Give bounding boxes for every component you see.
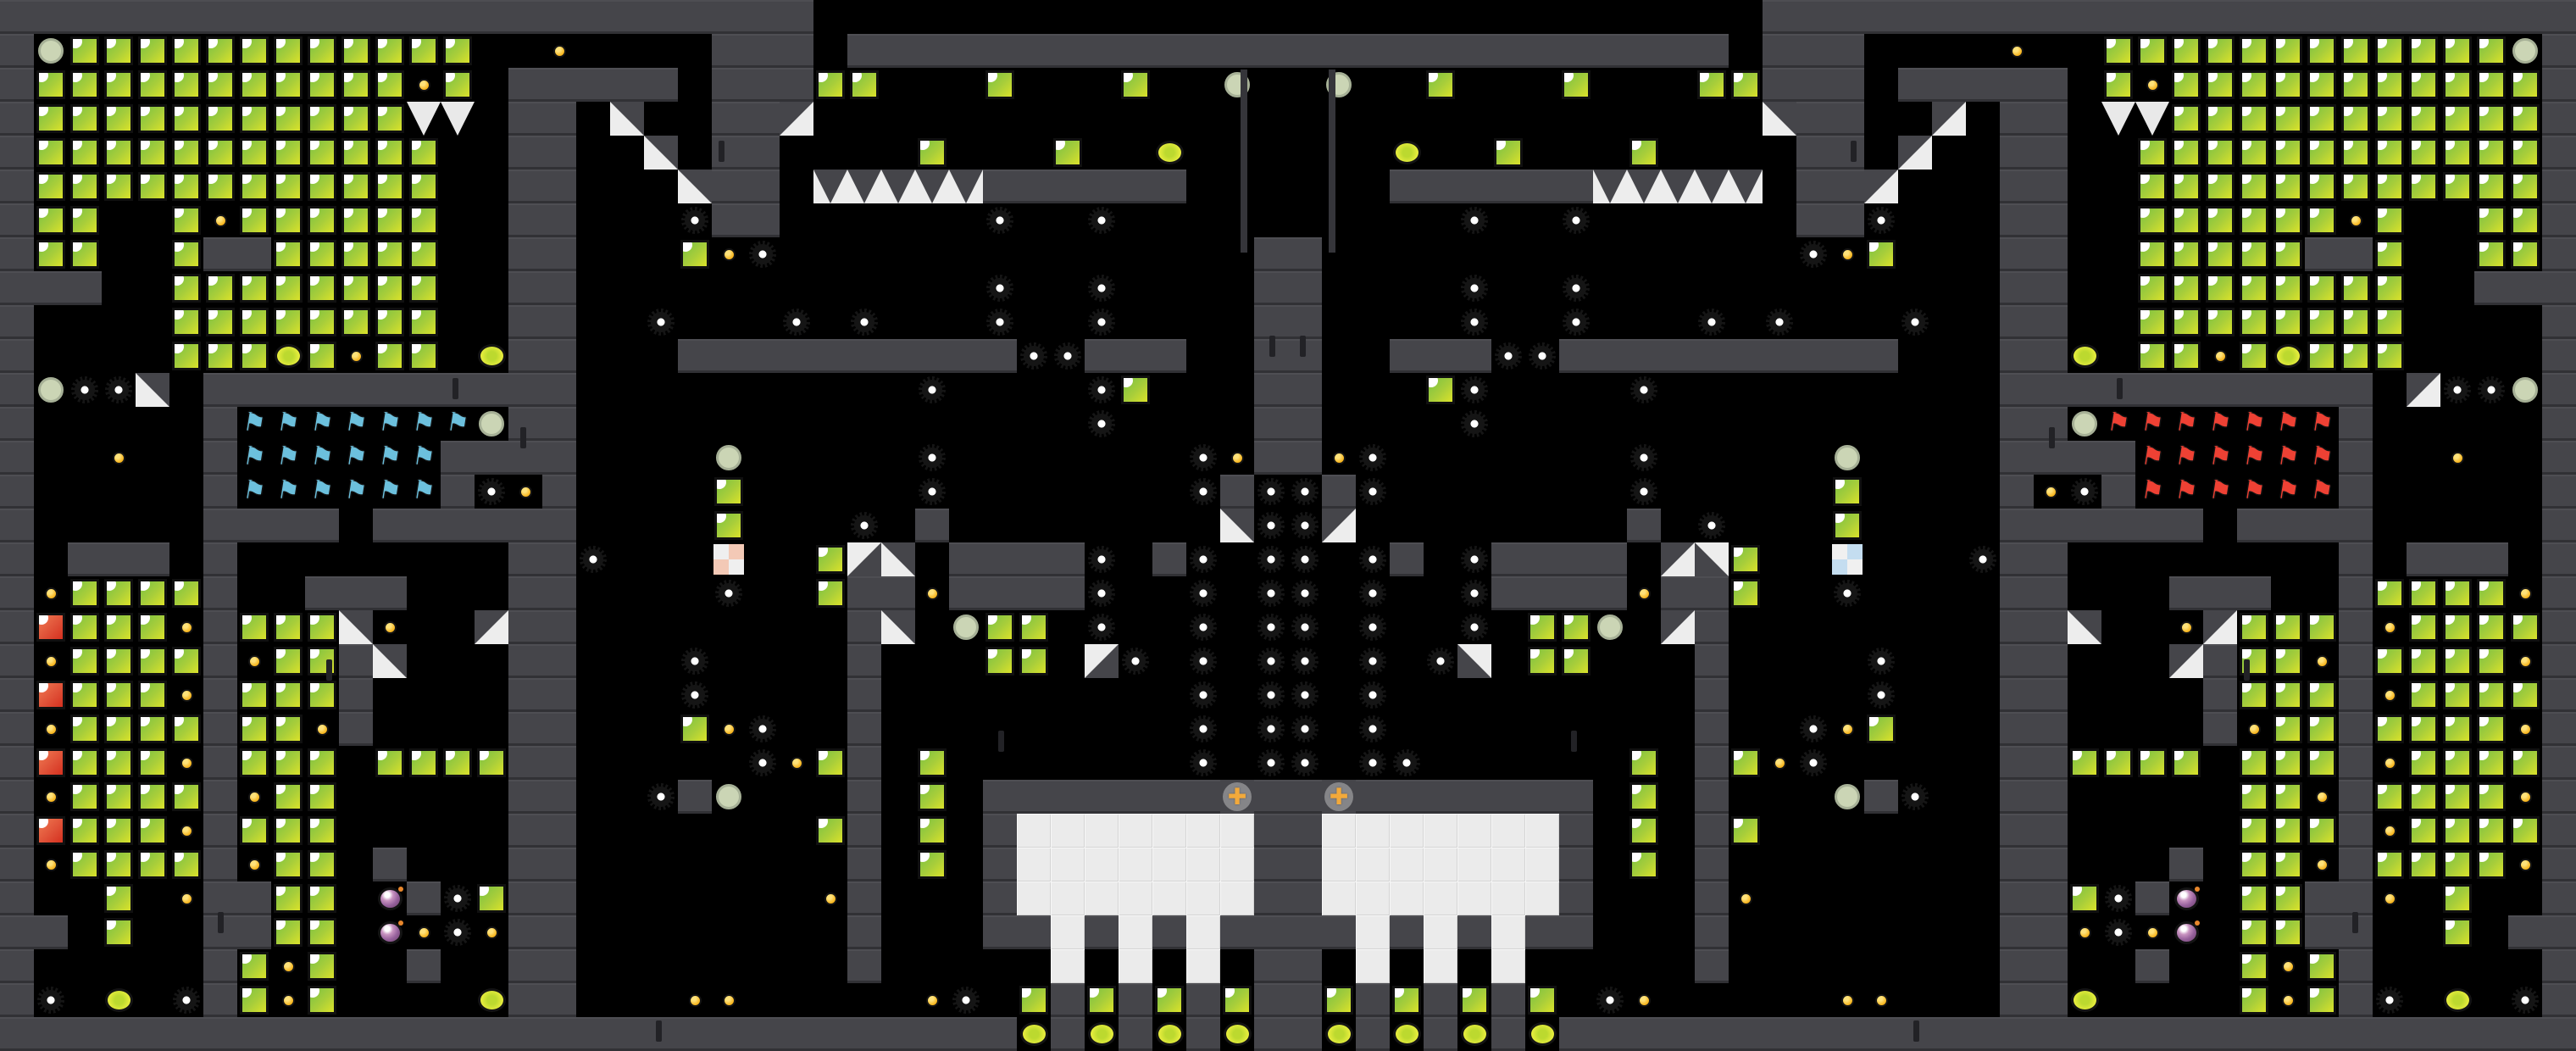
saw-gear-tile[interactable] [2068, 475, 2101, 509]
green-gem-tile[interactable] [1695, 68, 1729, 102]
coin-dot-tile[interactable] [34, 712, 68, 746]
green-gem-tile[interactable] [237, 949, 271, 983]
green-gem-tile[interactable] [271, 712, 305, 746]
saw-gear-tile[interactable] [1186, 576, 1220, 610]
green-gem-tile[interactable] [915, 136, 949, 170]
coin-dot-tile[interactable] [712, 237, 746, 271]
pale-orb-tile[interactable] [712, 441, 746, 475]
green-gem-tile[interactable] [2508, 68, 2542, 102]
cross-marker-tile[interactable]: ✚ [1322, 780, 1356, 814]
pale-orb-tile[interactable] [1322, 68, 1356, 102]
green-gem-tile[interactable] [2474, 712, 2508, 746]
saw-gear-tile[interactable] [1491, 339, 1525, 373]
teal-flag-tile[interactable]: ⚑ [373, 441, 407, 475]
yellow-orb-tile[interactable] [475, 339, 508, 373]
saw-gear-tile[interactable] [1864, 203, 1898, 237]
green-gem-tile[interactable] [2373, 339, 2407, 373]
green-gem-tile[interactable] [305, 949, 339, 983]
saw-gear-tile[interactable] [847, 305, 881, 339]
green-gem-tile[interactable] [203, 102, 237, 136]
green-gem-tile[interactable] [2373, 68, 2407, 102]
green-gem-tile[interactable] [2169, 34, 2203, 68]
teal-flag-tile[interactable]: ⚑ [305, 475, 339, 509]
green-gem-tile[interactable] [2101, 746, 2135, 780]
coin-dot-tile[interactable] [305, 712, 339, 746]
green-gem-tile[interactable] [2474, 102, 2508, 136]
green-gem-tile[interactable] [136, 746, 169, 780]
green-gem-tile[interactable] [2440, 678, 2474, 712]
saw-gear-tile[interactable] [1254, 509, 1288, 542]
green-gem-tile[interactable] [339, 203, 373, 237]
saw-gear-tile[interactable] [983, 305, 1017, 339]
coin-dot-tile[interactable] [2305, 644, 2339, 678]
saw-gear-tile[interactable] [1085, 576, 1119, 610]
saw-gear-tile[interactable] [1288, 678, 1322, 712]
green-gem-tile[interactable] [2508, 136, 2542, 170]
green-gem-tile[interactable] [339, 136, 373, 170]
green-gem-tile[interactable] [1627, 814, 1661, 848]
green-gem-tile[interactable] [2407, 712, 2440, 746]
saw-gear-tile[interactable] [1356, 475, 1390, 509]
coin-dot-tile[interactable] [2508, 780, 2542, 814]
green-gem-tile[interactable] [373, 305, 407, 339]
green-gem-tile[interactable] [1729, 814, 1763, 848]
green-gem-tile[interactable] [2339, 136, 2373, 170]
green-gem-tile[interactable] [136, 610, 169, 644]
saw-gear-tile[interactable] [1356, 441, 1390, 475]
green-gem-tile[interactable] [237, 339, 271, 373]
green-gem-tile[interactable] [102, 34, 136, 68]
green-gem-tile[interactable] [2407, 34, 2440, 68]
coin-dot-tile[interactable] [169, 610, 203, 644]
red-flag-tile[interactable]: ⚑ [2305, 475, 2339, 509]
purple-orb-tile[interactable] [373, 915, 407, 949]
purple-orb-tile[interactable] [2169, 915, 2203, 949]
green-gem-tile[interactable] [915, 848, 949, 881]
green-gem-tile[interactable] [68, 712, 102, 746]
saw-gear-tile[interactable] [1864, 644, 1898, 678]
saw-gear-tile[interactable] [1796, 712, 1830, 746]
green-gem-tile[interactable] [2407, 136, 2440, 170]
green-gem-tile[interactable] [2237, 610, 2271, 644]
green-gem-tile[interactable] [2407, 68, 2440, 102]
pink-checker-tile[interactable] [712, 542, 746, 576]
green-gem-tile[interactable] [2271, 203, 2305, 237]
green-gem-tile[interactable] [1627, 848, 1661, 881]
saw-gear-tile[interactable] [1051, 339, 1085, 373]
coin-dot-tile[interactable] [169, 814, 203, 848]
green-gem-tile[interactable] [2203, 170, 2237, 203]
saw-gear-tile[interactable] [576, 542, 610, 576]
saw-gear-tile[interactable] [1288, 475, 1322, 509]
green-gem-tile[interactable] [271, 814, 305, 848]
pale-orb-tile[interactable] [1593, 610, 1627, 644]
saw-gear-tile[interactable] [1085, 542, 1119, 576]
green-gem-tile[interactable] [305, 305, 339, 339]
green-gem-tile[interactable] [136, 848, 169, 881]
green-gem-tile[interactable] [2203, 305, 2237, 339]
saw-gear-tile[interactable] [1085, 271, 1119, 305]
green-gem-tile[interactable] [305, 170, 339, 203]
saw-gear-tile[interactable] [1288, 509, 1322, 542]
green-gem-tile[interactable] [203, 170, 237, 203]
saw-gear-tile[interactable] [1457, 203, 1491, 237]
green-gem-tile[interactable] [68, 678, 102, 712]
green-gem-tile[interactable] [68, 576, 102, 610]
green-gem-tile[interactable] [2373, 136, 2407, 170]
green-gem-tile[interactable] [813, 68, 847, 102]
green-gem-tile[interactable] [2203, 102, 2237, 136]
green-gem-tile[interactable] [68, 34, 102, 68]
teal-flag-tile[interactable]: ⚑ [441, 407, 475, 441]
green-gem-tile[interactable] [169, 34, 203, 68]
green-gem-tile[interactable] [2373, 271, 2407, 305]
green-gem-tile[interactable] [2474, 203, 2508, 237]
green-gem-tile[interactable] [169, 102, 203, 136]
coin-dot-tile[interactable] [1729, 881, 1763, 915]
green-gem-tile[interactable] [2271, 34, 2305, 68]
saw-gear-tile[interactable] [1254, 542, 1288, 576]
green-gem-tile[interactable] [305, 339, 339, 373]
green-gem-tile[interactable] [169, 271, 203, 305]
saw-gear-tile[interactable] [678, 644, 712, 678]
green-gem-tile[interactable] [237, 678, 271, 712]
green-gem-tile[interactable] [203, 34, 237, 68]
green-gem-tile[interactable] [373, 271, 407, 305]
green-gem-tile[interactable] [2305, 271, 2339, 305]
green-gem-tile[interactable] [2474, 170, 2508, 203]
green-gem-tile[interactable] [237, 68, 271, 102]
yellow-orb-tile[interactable] [2271, 339, 2305, 373]
coin-dot-tile[interactable] [237, 644, 271, 678]
green-gem-tile[interactable] [2135, 305, 2169, 339]
green-gem-tile[interactable] [169, 712, 203, 746]
green-gem-tile[interactable] [2271, 814, 2305, 848]
green-gem-tile[interactable] [102, 576, 136, 610]
green-gem-tile[interactable] [237, 610, 271, 644]
green-gem-tile[interactable] [2508, 678, 2542, 712]
saw-gear-tile[interactable] [441, 881, 475, 915]
green-gem-tile[interactable] [2373, 237, 2407, 271]
green-gem-tile[interactable] [102, 68, 136, 102]
green-gem-tile[interactable] [305, 678, 339, 712]
pale-orb-tile[interactable] [1830, 441, 1864, 475]
green-gem-tile[interactable] [2339, 305, 2373, 339]
green-gem-tile[interactable] [102, 915, 136, 949]
green-gem-tile[interactable] [2305, 203, 2339, 237]
green-gem-tile[interactable] [339, 102, 373, 136]
pale-orb-tile[interactable] [34, 34, 68, 68]
red-flag-tile[interactable]: ⚑ [2135, 407, 2169, 441]
green-gem-tile[interactable] [68, 848, 102, 881]
saw-gear-tile[interactable] [2101, 915, 2135, 949]
green-gem-tile[interactable] [2440, 68, 2474, 102]
green-gem-tile[interactable] [1424, 68, 1457, 102]
pale-orb-tile[interactable] [2508, 373, 2542, 407]
green-gem-tile[interactable] [2339, 68, 2373, 102]
green-gem-tile[interactable] [305, 34, 339, 68]
yellow-orb-tile[interactable] [102, 983, 136, 1017]
saw-gear-tile[interactable] [1457, 407, 1491, 441]
coin-dot-tile[interactable] [475, 915, 508, 949]
green-gem-tile[interactable] [237, 305, 271, 339]
green-gem-tile[interactable] [2339, 271, 2373, 305]
green-gem-tile[interactable] [678, 712, 712, 746]
green-gem-tile[interactable] [2373, 102, 2407, 136]
green-gem-tile[interactable] [1830, 475, 1864, 509]
pale-orb-tile[interactable] [1830, 780, 1864, 814]
green-gem-tile[interactable] [2237, 678, 2271, 712]
coin-dot-tile[interactable] [2373, 678, 2407, 712]
green-gem-tile[interactable] [2305, 170, 2339, 203]
green-gem-tile[interactable] [1627, 746, 1661, 780]
green-gem-tile[interactable] [2135, 271, 2169, 305]
teal-flag-tile[interactable]: ⚑ [271, 475, 305, 509]
saw-gear-tile[interactable] [1288, 576, 1322, 610]
green-gem-tile[interactable] [102, 610, 136, 644]
coin-dot-tile[interactable] [2373, 610, 2407, 644]
saw-gear-tile[interactable] [2373, 983, 2407, 1017]
green-gem-tile[interactable] [102, 814, 136, 848]
saw-gear-tile[interactable] [1186, 610, 1220, 644]
coin-dot-tile[interactable] [813, 881, 847, 915]
green-gem-tile[interactable] [2271, 848, 2305, 881]
coin-dot-tile[interactable] [2339, 203, 2373, 237]
saw-gear-tile[interactable] [1186, 542, 1220, 576]
green-gem-tile[interactable] [2305, 305, 2339, 339]
green-gem-tile[interactable] [136, 136, 169, 170]
coin-dot-tile[interactable] [2508, 576, 2542, 610]
green-gem-tile[interactable] [305, 848, 339, 881]
green-gem-tile[interactable] [2271, 746, 2305, 780]
green-gem-tile[interactable] [2237, 102, 2271, 136]
teal-flag-tile[interactable]: ⚑ [373, 407, 407, 441]
green-gem-tile[interactable] [2508, 746, 2542, 780]
green-gem-tile[interactable] [2474, 644, 2508, 678]
saw-gear-tile[interactable] [1695, 305, 1729, 339]
saw-gear-tile[interactable] [1390, 746, 1424, 780]
green-gem-tile[interactable] [2474, 136, 2508, 170]
saw-gear-tile[interactable] [1356, 610, 1390, 644]
green-gem-tile[interactable] [373, 339, 407, 373]
blue-checker-tile[interactable] [1830, 542, 1864, 576]
green-gem-tile[interactable] [475, 746, 508, 780]
green-gem-tile[interactable] [2135, 237, 2169, 271]
saw-gear-tile[interactable] [2440, 373, 2474, 407]
coin-dot-tile[interactable] [2135, 68, 2169, 102]
green-gem-tile[interactable] [237, 34, 271, 68]
red-flag-tile[interactable]: ⚑ [2237, 407, 2271, 441]
teal-flag-tile[interactable]: ⚑ [407, 407, 441, 441]
saw-gear-tile[interactable] [1254, 610, 1288, 644]
green-gem-tile[interactable] [2440, 814, 2474, 848]
green-gem-tile[interactable] [2237, 34, 2271, 68]
green-gem-tile[interactable] [339, 305, 373, 339]
green-gem-tile[interactable] [1559, 644, 1593, 678]
saw-gear-tile[interactable] [1186, 678, 1220, 712]
saw-gear-tile[interactable] [1254, 475, 1288, 509]
green-gem-tile[interactable] [34, 170, 68, 203]
pale-orb-tile[interactable] [712, 780, 746, 814]
saw-gear-tile[interactable] [1288, 644, 1322, 678]
green-gem-tile[interactable] [2237, 949, 2271, 983]
green-gem-tile[interactable] [271, 68, 305, 102]
coin-dot-tile[interactable] [2135, 915, 2169, 949]
saw-gear-tile[interactable] [1186, 712, 1220, 746]
coin-dot-tile[interactable] [237, 848, 271, 881]
green-gem-tile[interactable] [2135, 203, 2169, 237]
red-flag-tile[interactable]: ⚑ [2271, 407, 2305, 441]
coin-dot-tile[interactable] [1627, 576, 1661, 610]
saw-gear-tile[interactable] [678, 678, 712, 712]
green-gem-tile[interactable] [2169, 305, 2203, 339]
green-gem-tile[interactable] [305, 915, 339, 949]
yellow-orb-tile[interactable] [2068, 983, 2101, 1017]
green-gem-tile[interactable] [2373, 848, 2407, 881]
green-gem-tile[interactable] [2474, 237, 2508, 271]
saw-gear-tile[interactable] [1457, 271, 1491, 305]
green-gem-tile[interactable] [2508, 814, 2542, 848]
green-gem-tile[interactable] [2305, 34, 2339, 68]
green-gem-tile[interactable] [271, 678, 305, 712]
green-gem-tile[interactable] [339, 68, 373, 102]
saw-gear-tile[interactable] [1796, 746, 1830, 780]
green-gem-tile[interactable] [915, 814, 949, 848]
green-gem-tile[interactable] [271, 610, 305, 644]
green-gem-tile[interactable] [2271, 712, 2305, 746]
green-gem-tile[interactable] [712, 475, 746, 509]
coin-dot-tile[interactable] [1763, 746, 1796, 780]
green-gem-tile[interactable] [2440, 136, 2474, 170]
green-gem-tile[interactable] [2237, 848, 2271, 881]
teal-flag-tile[interactable]: ⚑ [271, 441, 305, 475]
green-gem-tile[interactable] [2169, 339, 2203, 373]
green-gem-tile[interactable] [1322, 983, 1356, 1017]
green-gem-tile[interactable] [2169, 203, 2203, 237]
pale-orb-tile[interactable] [2068, 407, 2101, 441]
green-gem-tile[interactable] [2271, 780, 2305, 814]
teal-flag-tile[interactable]: ⚑ [373, 475, 407, 509]
green-gem-tile[interactable] [2508, 102, 2542, 136]
green-gem-tile[interactable] [915, 746, 949, 780]
green-gem-tile[interactable] [407, 305, 441, 339]
green-gem-tile[interactable] [2237, 814, 2271, 848]
green-gem-tile[interactable] [2169, 237, 2203, 271]
green-gem-tile[interactable] [2508, 170, 2542, 203]
coin-dot-tile[interactable] [34, 848, 68, 881]
coin-dot-tile[interactable] [169, 746, 203, 780]
coin-dot-tile[interactable] [237, 780, 271, 814]
coin-dot-tile[interactable] [407, 915, 441, 949]
green-gem-tile[interactable] [983, 68, 1017, 102]
green-gem-tile[interactable] [2373, 203, 2407, 237]
green-gem-tile[interactable] [441, 746, 475, 780]
green-gem-tile[interactable] [237, 170, 271, 203]
saw-gear-tile[interactable] [1017, 339, 1051, 373]
coin-dot-tile[interactable] [2271, 949, 2305, 983]
green-gem-tile[interactable] [102, 136, 136, 170]
green-gem-tile[interactable] [2440, 102, 2474, 136]
coin-dot-tile[interactable] [2203, 339, 2237, 373]
green-gem-tile[interactable] [102, 712, 136, 746]
green-gem-tile[interactable] [1017, 983, 1051, 1017]
red-flag-tile[interactable]: ⚑ [2135, 441, 2169, 475]
green-gem-tile[interactable] [305, 68, 339, 102]
coin-dot-tile[interactable] [1220, 441, 1254, 475]
green-gem-tile[interactable] [102, 746, 136, 780]
green-gem-tile[interactable] [475, 881, 508, 915]
green-gem-tile[interactable] [339, 170, 373, 203]
green-gem-tile[interactable] [2237, 305, 2271, 339]
saw-gear-tile[interactable] [1085, 407, 1119, 441]
green-gem-tile[interactable] [2474, 678, 2508, 712]
saw-gear-tile[interactable] [1966, 542, 2000, 576]
green-gem-tile[interactable] [237, 203, 271, 237]
green-gem-tile[interactable] [271, 780, 305, 814]
green-gem-tile[interactable] [373, 102, 407, 136]
coin-dot-tile[interactable] [271, 983, 305, 1017]
green-gem-tile[interactable] [2407, 746, 2440, 780]
green-gem-tile[interactable] [1220, 983, 1254, 1017]
green-gem-tile[interactable] [2135, 170, 2169, 203]
green-gem-tile[interactable] [2203, 34, 2237, 68]
teal-flag-tile[interactable]: ⚑ [339, 407, 373, 441]
green-gem-tile[interactable] [2373, 712, 2407, 746]
green-gem-tile[interactable] [237, 814, 271, 848]
saw-gear-tile[interactable] [1254, 746, 1288, 780]
green-gem-tile[interactable] [305, 780, 339, 814]
saw-gear-tile[interactable] [1288, 712, 1322, 746]
green-gem-tile[interactable] [2305, 949, 2339, 983]
green-gem-tile[interactable] [2271, 237, 2305, 271]
green-gem-tile[interactable] [2271, 915, 2305, 949]
green-gem-tile[interactable] [271, 34, 305, 68]
coin-dot-tile[interactable] [339, 339, 373, 373]
green-gem-tile[interactable] [2169, 271, 2203, 305]
green-gem-tile[interactable] [102, 102, 136, 136]
green-gem-tile[interactable] [2339, 102, 2373, 136]
green-gem-tile[interactable] [305, 237, 339, 271]
green-gem-tile[interactable] [2373, 34, 2407, 68]
green-gem-tile[interactable] [2237, 237, 2271, 271]
green-gem-tile[interactable] [2407, 678, 2440, 712]
green-gem-tile[interactable] [68, 68, 102, 102]
saw-gear-tile[interactable] [68, 373, 102, 407]
green-gem-tile[interactable] [373, 203, 407, 237]
green-gem-tile[interactable] [136, 576, 169, 610]
green-gem-tile[interactable] [2474, 68, 2508, 102]
green-gem-tile[interactable] [1729, 542, 1763, 576]
red-flag-tile[interactable]: ⚑ [2271, 441, 2305, 475]
saw-gear-tile[interactable] [1186, 441, 1220, 475]
green-gem-tile[interactable] [169, 203, 203, 237]
green-gem-tile[interactable] [847, 68, 881, 102]
green-gem-tile[interactable] [813, 542, 847, 576]
green-gem-tile[interactable] [271, 305, 305, 339]
green-gem-tile[interactable] [339, 237, 373, 271]
saw-gear-tile[interactable] [1457, 542, 1491, 576]
coin-dot-tile[interactable] [2237, 712, 2271, 746]
coin-dot-tile[interactable] [102, 441, 136, 475]
saw-gear-tile[interactable] [1695, 509, 1729, 542]
green-gem-tile[interactable] [271, 271, 305, 305]
green-gem-tile[interactable] [2169, 170, 2203, 203]
green-gem-tile[interactable] [407, 34, 441, 68]
coin-dot-tile[interactable] [2305, 780, 2339, 814]
green-gem-tile[interactable] [2305, 339, 2339, 373]
green-gem-tile[interactable] [34, 102, 68, 136]
coin-dot-tile[interactable] [2508, 644, 2542, 678]
